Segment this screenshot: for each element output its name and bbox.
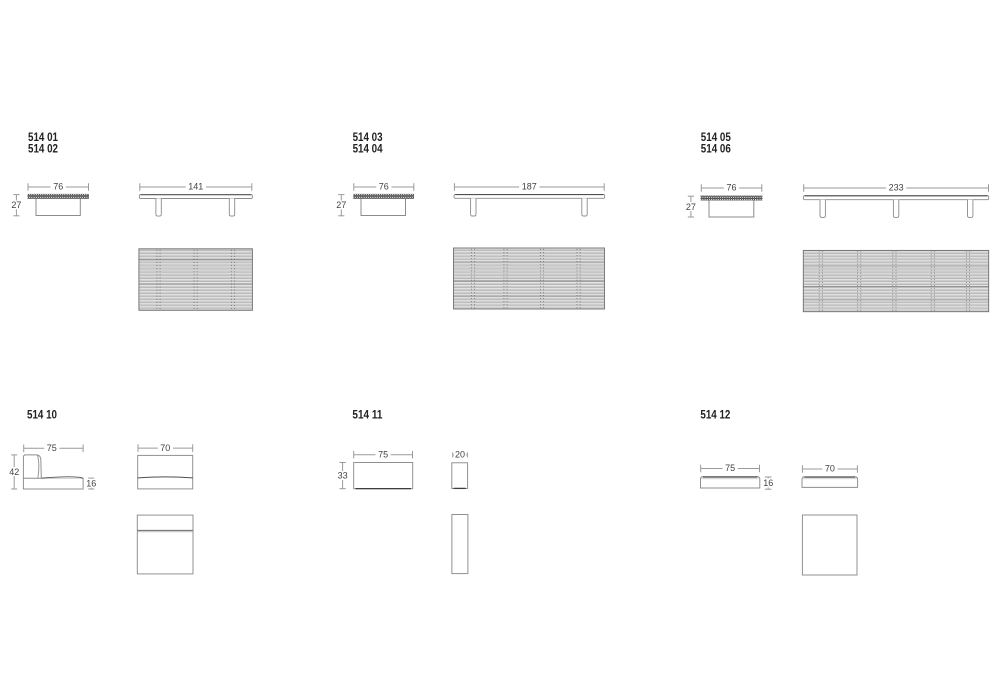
svg-text:514 10: 514 10 <box>27 410 57 422</box>
svg-text:27: 27 <box>686 202 696 212</box>
svg-text:514 04: 514 04 <box>353 144 384 156</box>
svg-text:514 03: 514 03 <box>353 132 383 144</box>
svg-text:187: 187 <box>522 182 537 192</box>
svg-text:76: 76 <box>379 182 389 192</box>
svg-text:514 11: 514 11 <box>352 410 383 422</box>
svg-text:233: 233 <box>889 183 904 193</box>
svg-text:70: 70 <box>825 464 835 474</box>
svg-text:42: 42 <box>9 467 19 477</box>
svg-text:75: 75 <box>47 443 57 453</box>
svg-text:27: 27 <box>336 200 346 210</box>
svg-text:70: 70 <box>160 443 170 453</box>
svg-text:16: 16 <box>86 478 96 488</box>
svg-text:75: 75 <box>725 463 735 473</box>
svg-text:20: 20 <box>455 450 465 460</box>
svg-text:16: 16 <box>763 478 773 488</box>
svg-text:514 05: 514 05 <box>701 132 732 144</box>
svg-text:33: 33 <box>338 471 348 481</box>
svg-text:76: 76 <box>53 182 63 192</box>
svg-text:27: 27 <box>11 200 21 210</box>
svg-text:76: 76 <box>726 183 736 193</box>
svg-text:75: 75 <box>378 449 388 459</box>
svg-text:514 02: 514 02 <box>28 144 58 156</box>
svg-text:141: 141 <box>188 182 203 192</box>
svg-text:514 12: 514 12 <box>700 410 730 422</box>
svg-text:514 06: 514 06 <box>701 144 731 156</box>
svg-text:514 01: 514 01 <box>28 132 59 144</box>
